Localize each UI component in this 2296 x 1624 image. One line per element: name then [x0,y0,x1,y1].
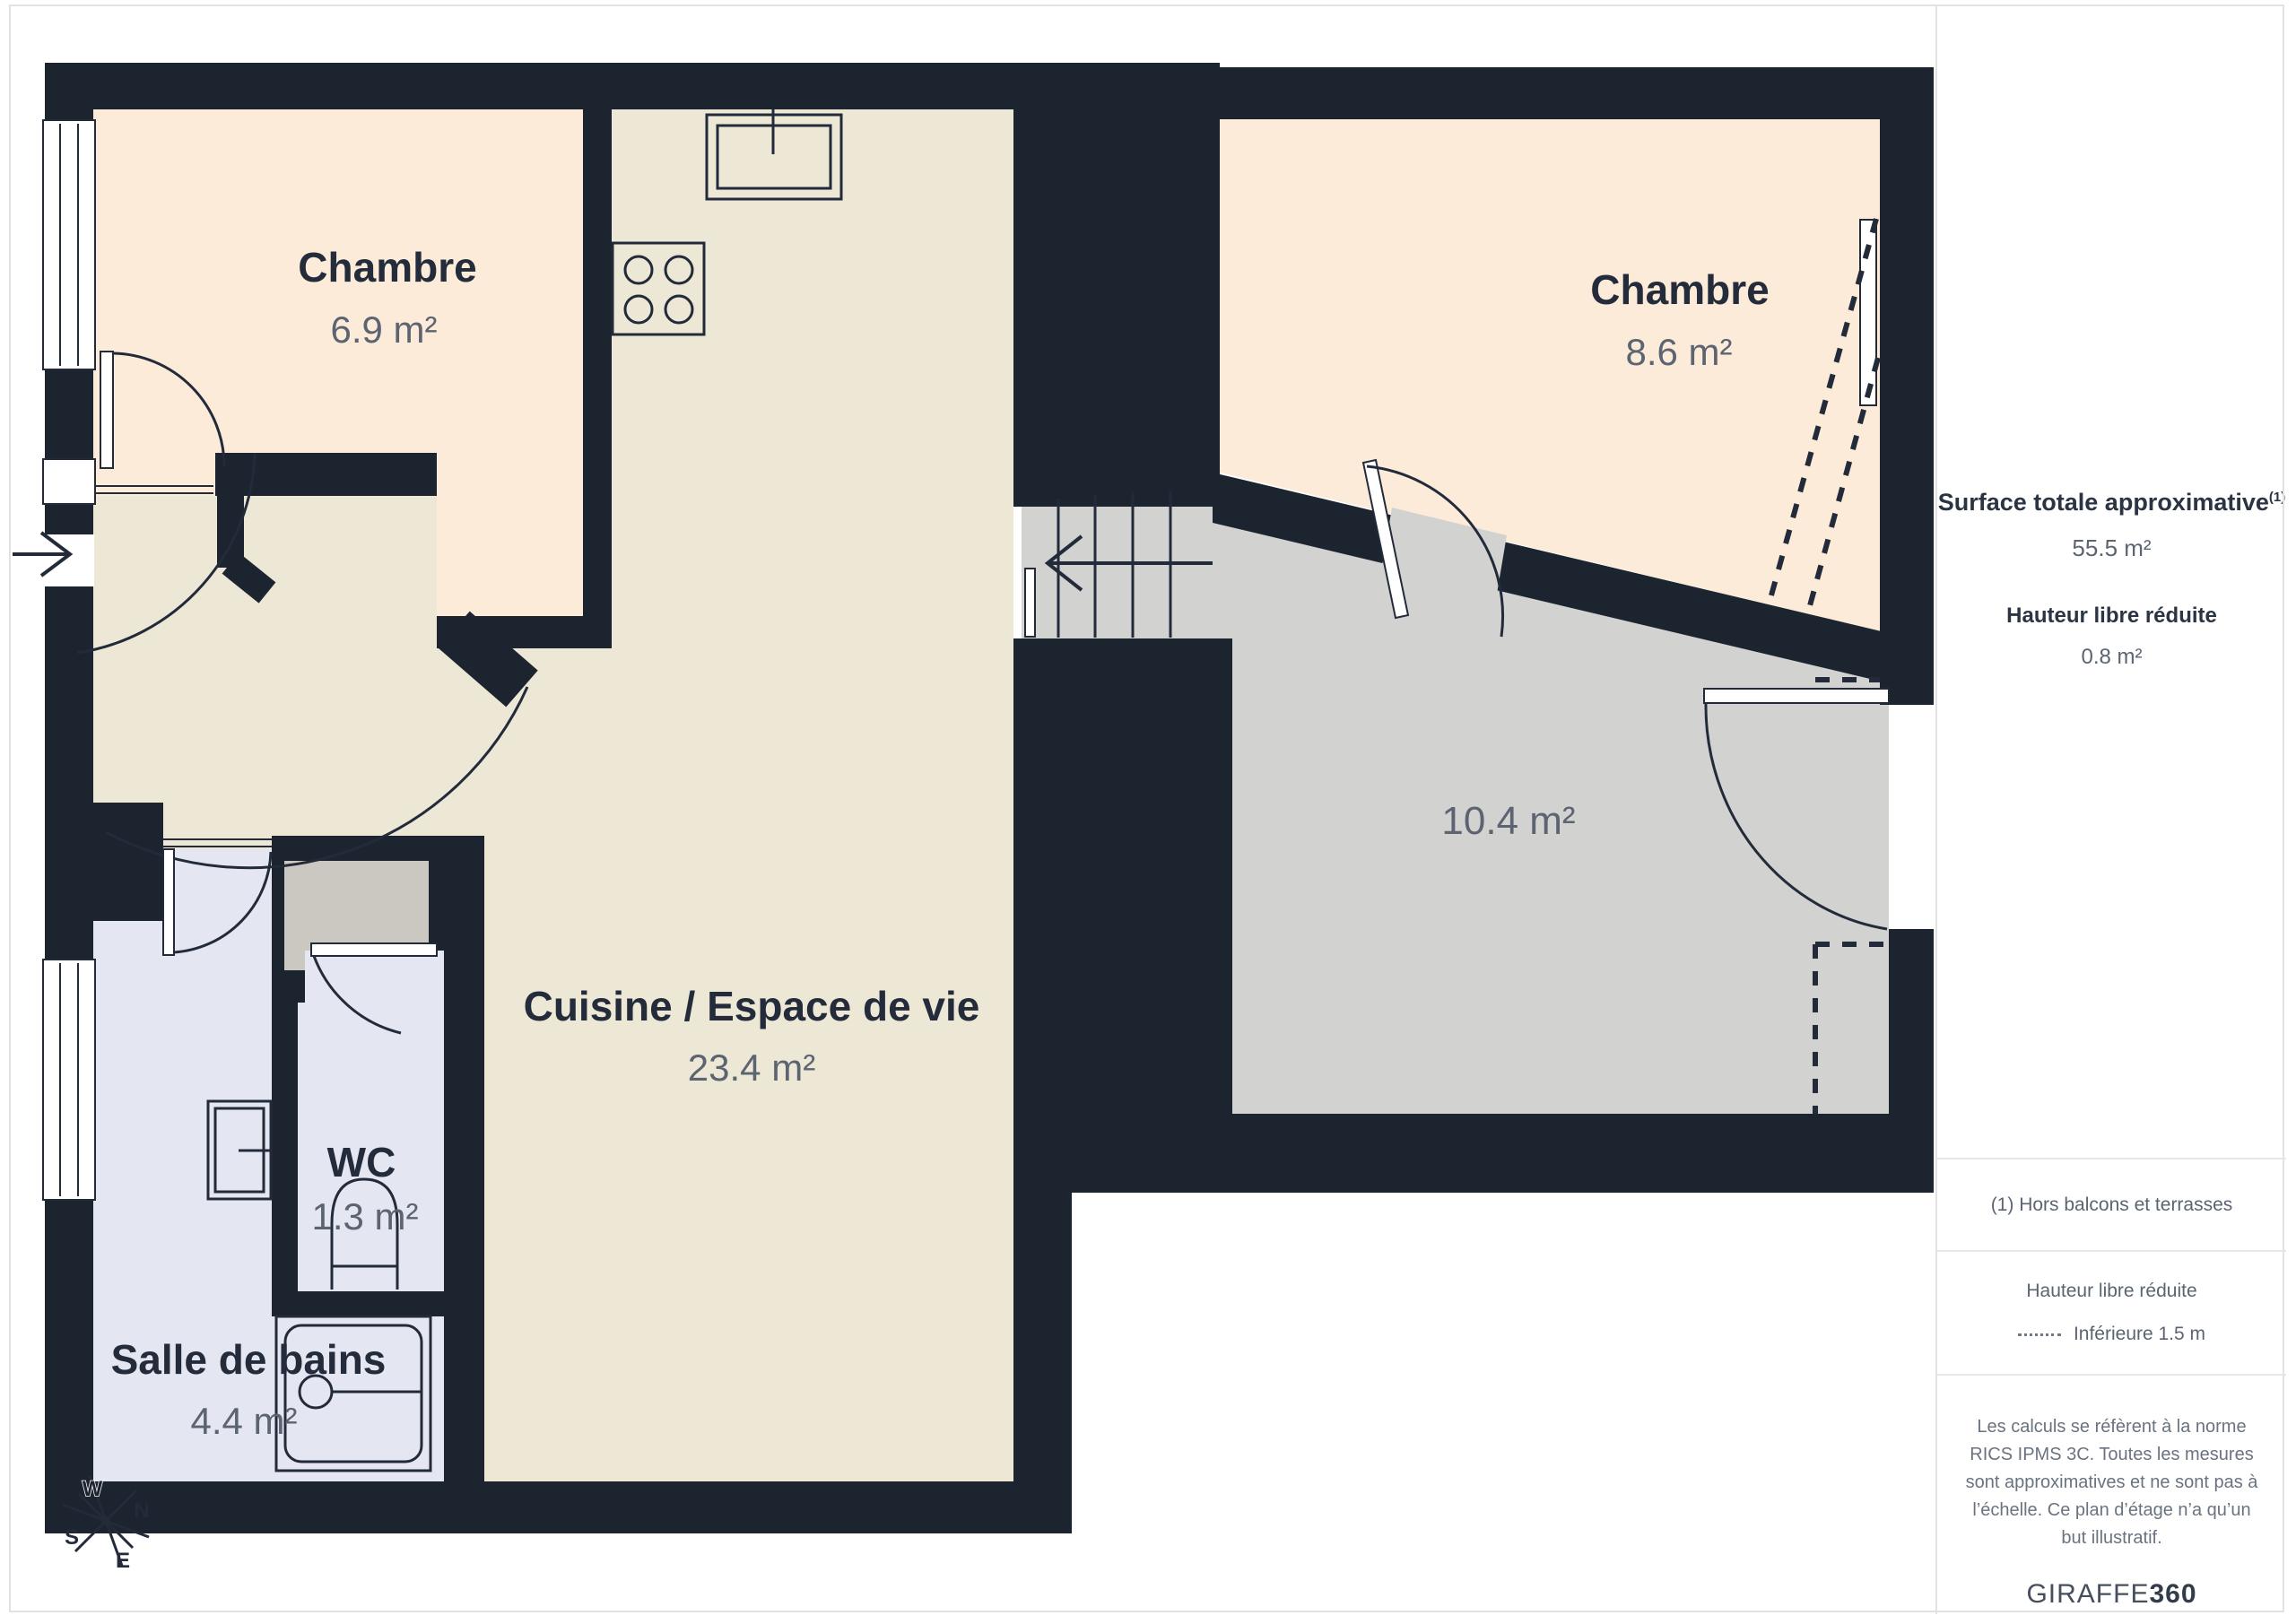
window-bains-icon [43,960,95,1200]
sidebar-surface-section: Surface totale approximative(1) 55.5 m² … [1937,4,2286,1159]
label-cuisine-area: 23.4 m² [688,1046,815,1089]
brand-suffix: 360 [2149,1579,2196,1609]
door-leaf-wc [311,943,437,956]
surface-total-title-text: Surface totale approximative [1938,489,2269,516]
wall-chambre1-bottom-left [215,453,437,496]
compass-north: N [134,1498,149,1523]
label-bains-area: 4.4 m² [190,1400,297,1442]
wall-top [45,63,1067,109]
wall-wc-bottom [272,1291,444,1316]
wall-right-lower [1889,929,1934,1114]
compass-west: W [83,1477,103,1501]
sidebar-footnote-section: (1) Hors balcons et terrasses [1937,1159,2286,1252]
brand-name: GIRAFFE [2026,1579,2149,1609]
wall-bottom [45,1481,1072,1533]
legend-row: Inférieure 1.5 m [1937,1324,2286,1345]
wall-palier-bottom [1072,1114,1934,1193]
surface-total-title-sup: (1) [2269,490,2285,505]
label-chambre1-area: 6.9 m² [330,308,437,351]
door-leaf-palier [1704,689,1889,703]
label-chambre2-name: Chambre [1590,266,1769,313]
wall-chambre1-right [583,109,612,648]
room-bains-floor [93,849,272,1481]
label-wc-name: WC [327,1139,396,1185]
footnote-text: (1) Hors balcons et terrasses [1991,1194,2233,1216]
wall-bains-right [444,836,484,1481]
label-bains-name: Salle de bains [111,1336,387,1383]
legend-title: Hauteur libre réduite [1937,1281,2286,1302]
label-wc-area: 1.3 m² [311,1195,418,1238]
reduced-height-value: 0.8 m² [1937,645,2286,670]
door-leaf-chambre1 [100,352,113,468]
brand-logo: GIRAFFE360 [1937,1579,2286,1610]
reduced-height-title: Hauteur libre réduite [1937,604,2286,629]
wall-chambre2-top [1211,67,1934,119]
legend-item-label: Inférieure 1.5 m [2074,1324,2205,1345]
wall-below-stairs [1013,638,1232,1114]
wall-wc-left [272,1003,298,1309]
surface-total-value: 55.5 m² [1937,534,2286,562]
stairs-banister [1025,569,1035,637]
doorway-wc-gap [305,951,444,1003]
doorway-palier-gap [1889,705,1934,929]
label-chambre1-name: Chambre [298,244,476,291]
wall-right-upper [1880,67,1934,705]
door-leaf-bains [163,849,174,955]
disclaimer-text: Les calculs se réfèrent à la norme RICS … [1964,1413,2260,1552]
sidebar-disclaimer-section: Les calculs se réfèrent à la norme RICS … [1937,1376,2286,1612]
compass-east: E [116,1549,130,1573]
window-chambre1-icon [43,120,95,369]
compass-south: S [65,1525,79,1550]
wall-kitchen-right-upper [1013,63,1220,507]
label-cuisine-name: Cuisine / Espace de vie [524,983,980,1029]
label-chambre2-area: 8.6 m² [1625,331,1732,373]
dotted-line-icon [2018,1333,2061,1336]
surface-total-title: Surface totale approximative(1) [1937,489,2286,517]
sidebar-legend-section: Hauteur libre réduite Inférieure 1.5 m [1937,1252,2286,1376]
label-palier-area: 10.4 m² [1441,799,1575,843]
window-entry-icon [43,459,95,504]
wall-kitchen-right-lower [1013,1114,1072,1533]
wall-bains-top-left [45,803,163,921]
info-sidebar: Surface totale approximative(1) 55.5 m² … [1935,4,2286,1614]
floorplan-page: W N S E Chambre 6.9 m² Chambre 8.6 m² Cu… [0,0,2296,1624]
